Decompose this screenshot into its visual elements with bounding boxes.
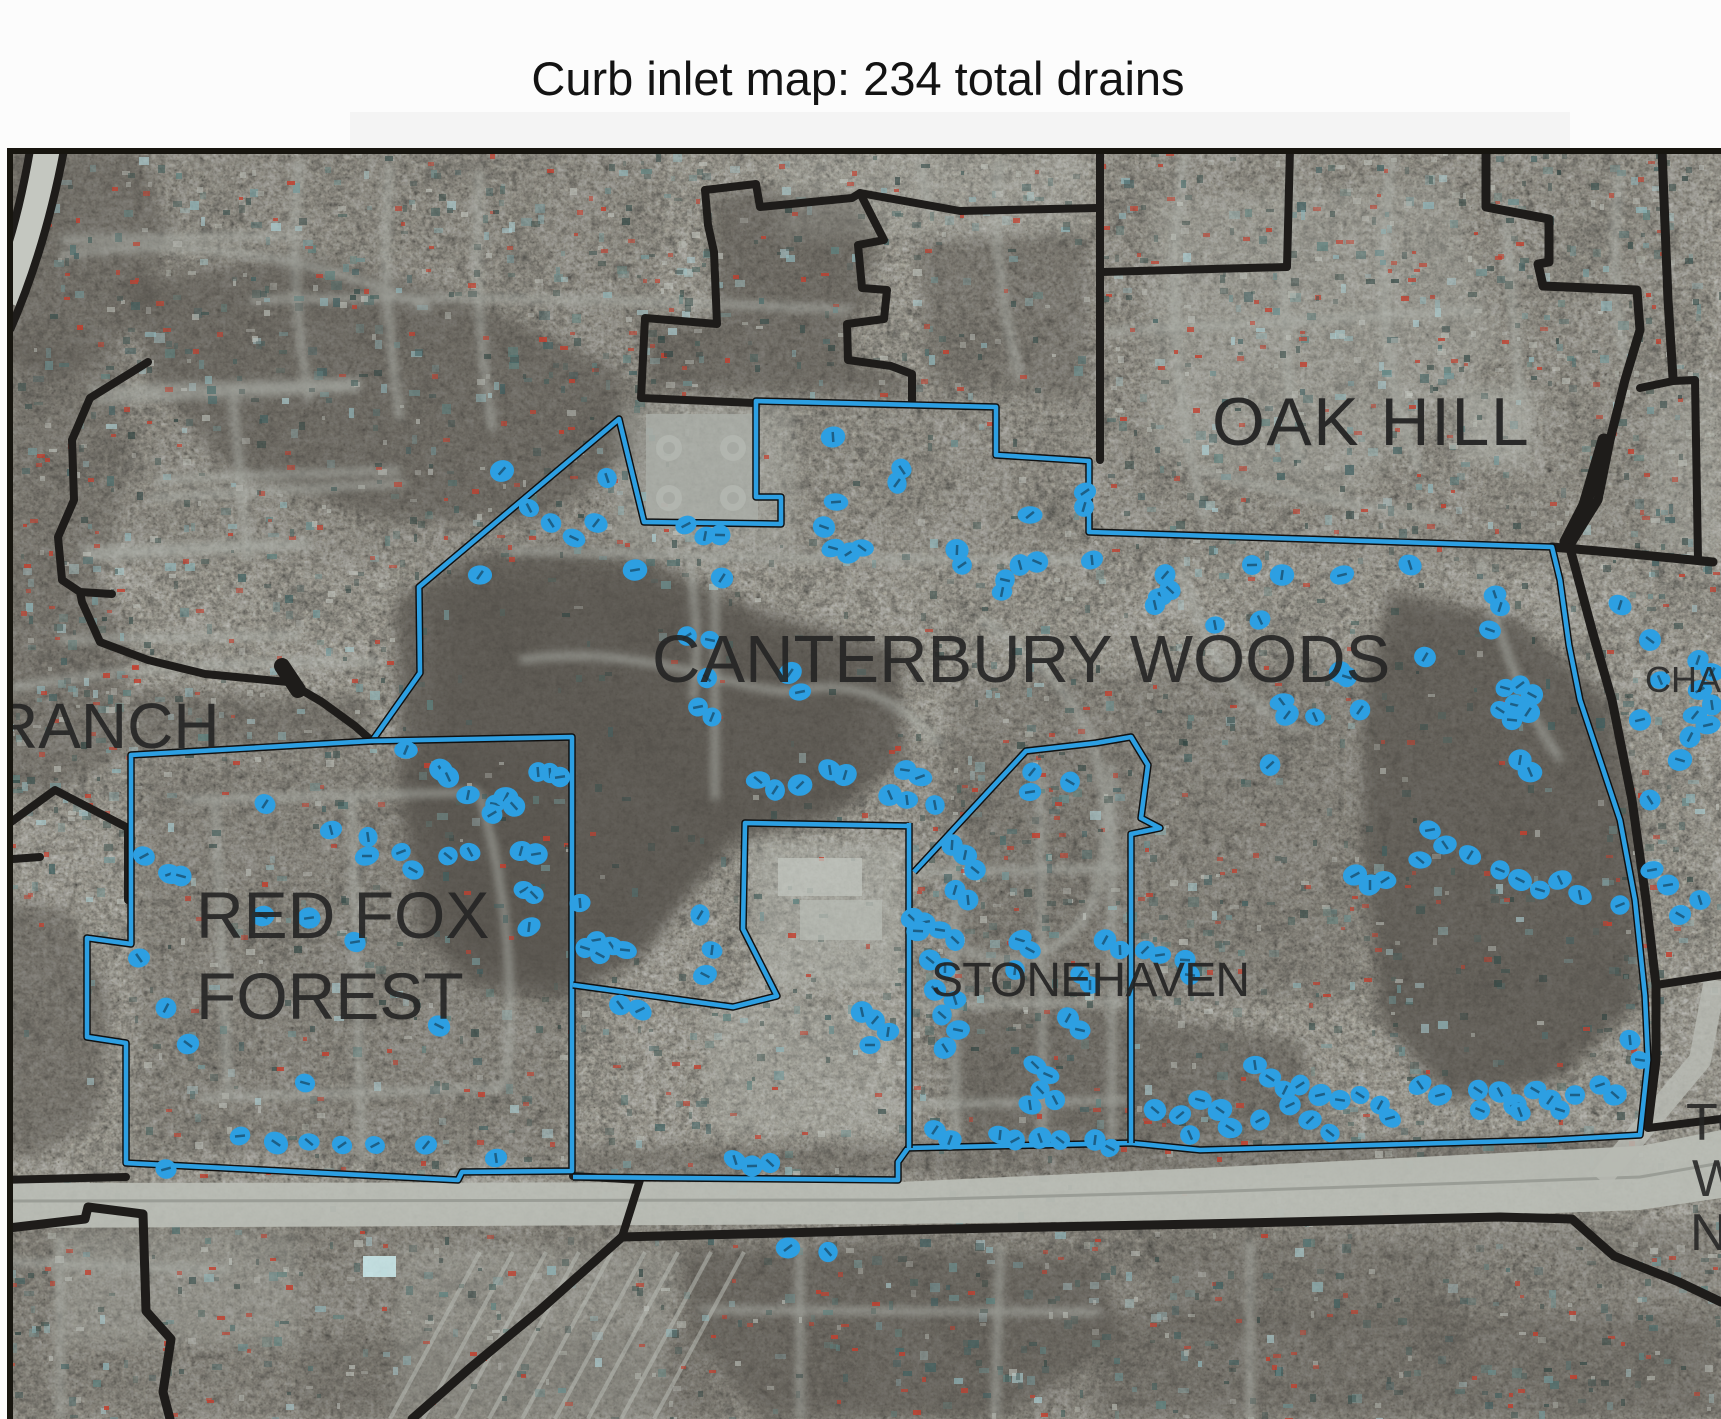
- svg-text:Curb inlet map: 234 total drai: Curb inlet map: 234 total drains: [531, 52, 1184, 105]
- svg-text:CHA: CHA: [1645, 659, 1721, 700]
- svg-text:TO: TO: [1686, 1094, 1721, 1152]
- svg-text:RED FOX: RED FOX: [196, 878, 489, 952]
- svg-text:FOREST: FOREST: [196, 959, 464, 1033]
- svg-text:NF: NF: [1690, 1204, 1721, 1262]
- svg-text:RANCH: RANCH: [0, 690, 220, 762]
- svg-text:STONEHAVEN: STONEHAVEN: [931, 954, 1249, 1007]
- svg-text:W: W: [1692, 1150, 1721, 1208]
- svg-text:CANTERBURY WOODS: CANTERBURY WOODS: [652, 622, 1390, 697]
- svg-text:OAK HILL: OAK HILL: [1212, 384, 1530, 460]
